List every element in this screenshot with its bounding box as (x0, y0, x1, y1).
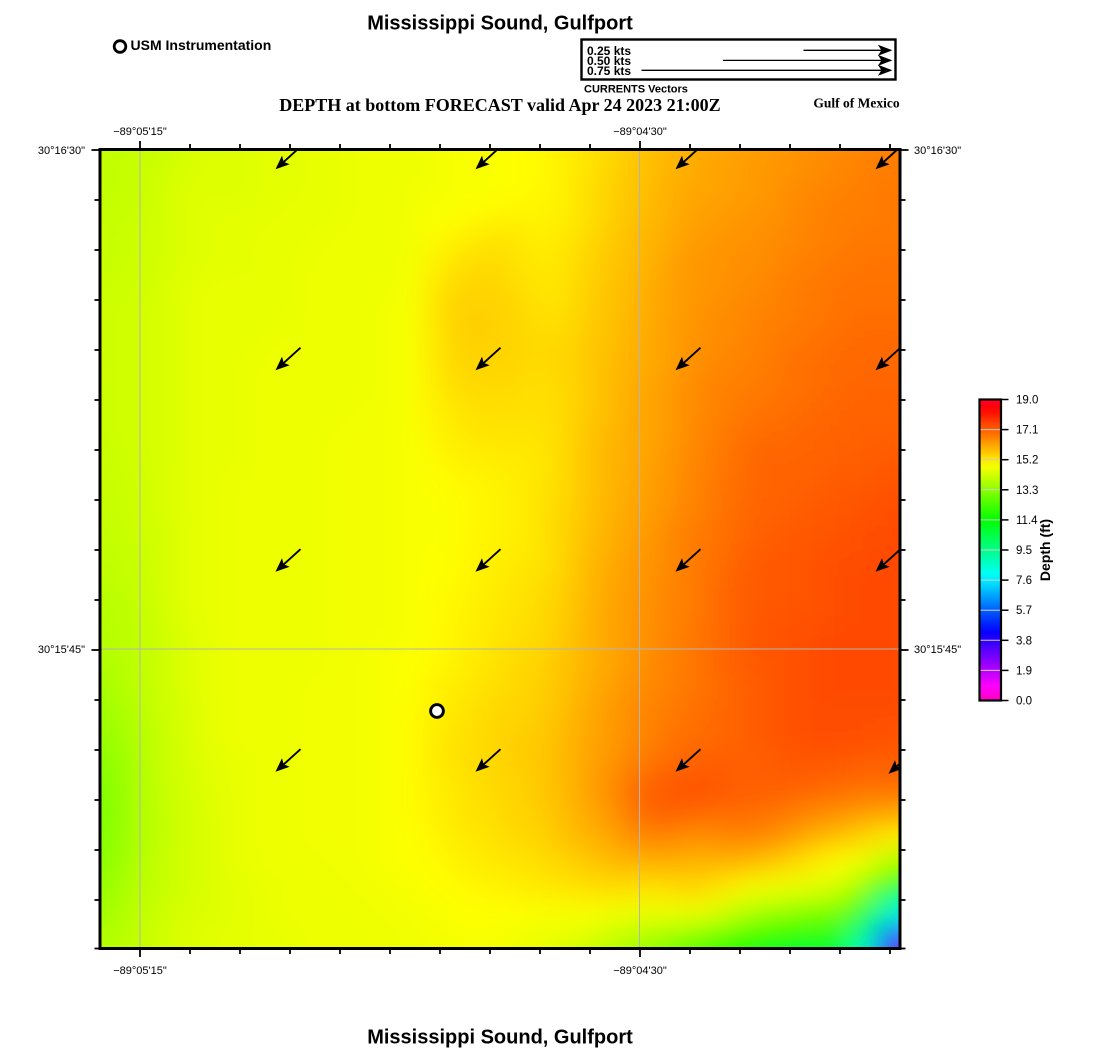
svg-text:30°15'45": 30°15'45" (914, 644, 961, 656)
svg-text:0.75 kts: 0.75 kts (587, 64, 631, 78)
svg-text:Depth (ft): Depth (ft) (1037, 519, 1053, 581)
svg-text:9.5: 9.5 (1016, 545, 1032, 557)
svg-text:7.6: 7.6 (1016, 575, 1032, 587)
svg-text:−89°05'15": −89°05'15" (113, 965, 167, 977)
svg-text:30°16'30": 30°16'30" (38, 145, 85, 157)
svg-text:USM Instrumentation: USM Instrumentation (131, 37, 272, 53)
svg-text:−89°04'30": −89°04'30" (613, 126, 667, 138)
svg-text:CURRENTS Vectors: CURRENTS Vectors (584, 84, 688, 96)
svg-text:Mississippi Sound, Gulfport: Mississippi Sound, Gulfport (367, 13, 633, 35)
svg-text:DEPTH at bottom FORECAST valid: DEPTH at bottom FORECAST valid Apr 24 20… (279, 95, 720, 115)
svg-text:30°16'30": 30°16'30" (914, 145, 961, 157)
svg-text:−89°05'15": −89°05'15" (113, 126, 167, 138)
svg-text:−89°04'30": −89°04'30" (613, 965, 667, 977)
svg-text:30°15'45": 30°15'45" (38, 644, 85, 656)
svg-text:11.4: 11.4 (1016, 515, 1038, 527)
svg-text:Gulf of Mexico: Gulf of Mexico (813, 96, 899, 111)
svg-text:Mississippi Sound, Gulfport: Mississippi Sound, Gulfport (367, 1027, 633, 1049)
svg-text:15.2: 15.2 (1016, 455, 1038, 467)
svg-text:5.7: 5.7 (1016, 605, 1032, 617)
svg-text:19.0: 19.0 (1016, 395, 1038, 407)
svg-text:1.9: 1.9 (1016, 665, 1032, 677)
svg-text:13.3: 13.3 (1016, 485, 1038, 497)
svg-text:3.8: 3.8 (1016, 635, 1032, 647)
svg-text:17.1: 17.1 (1016, 425, 1038, 437)
svg-text:0.0: 0.0 (1016, 696, 1032, 708)
